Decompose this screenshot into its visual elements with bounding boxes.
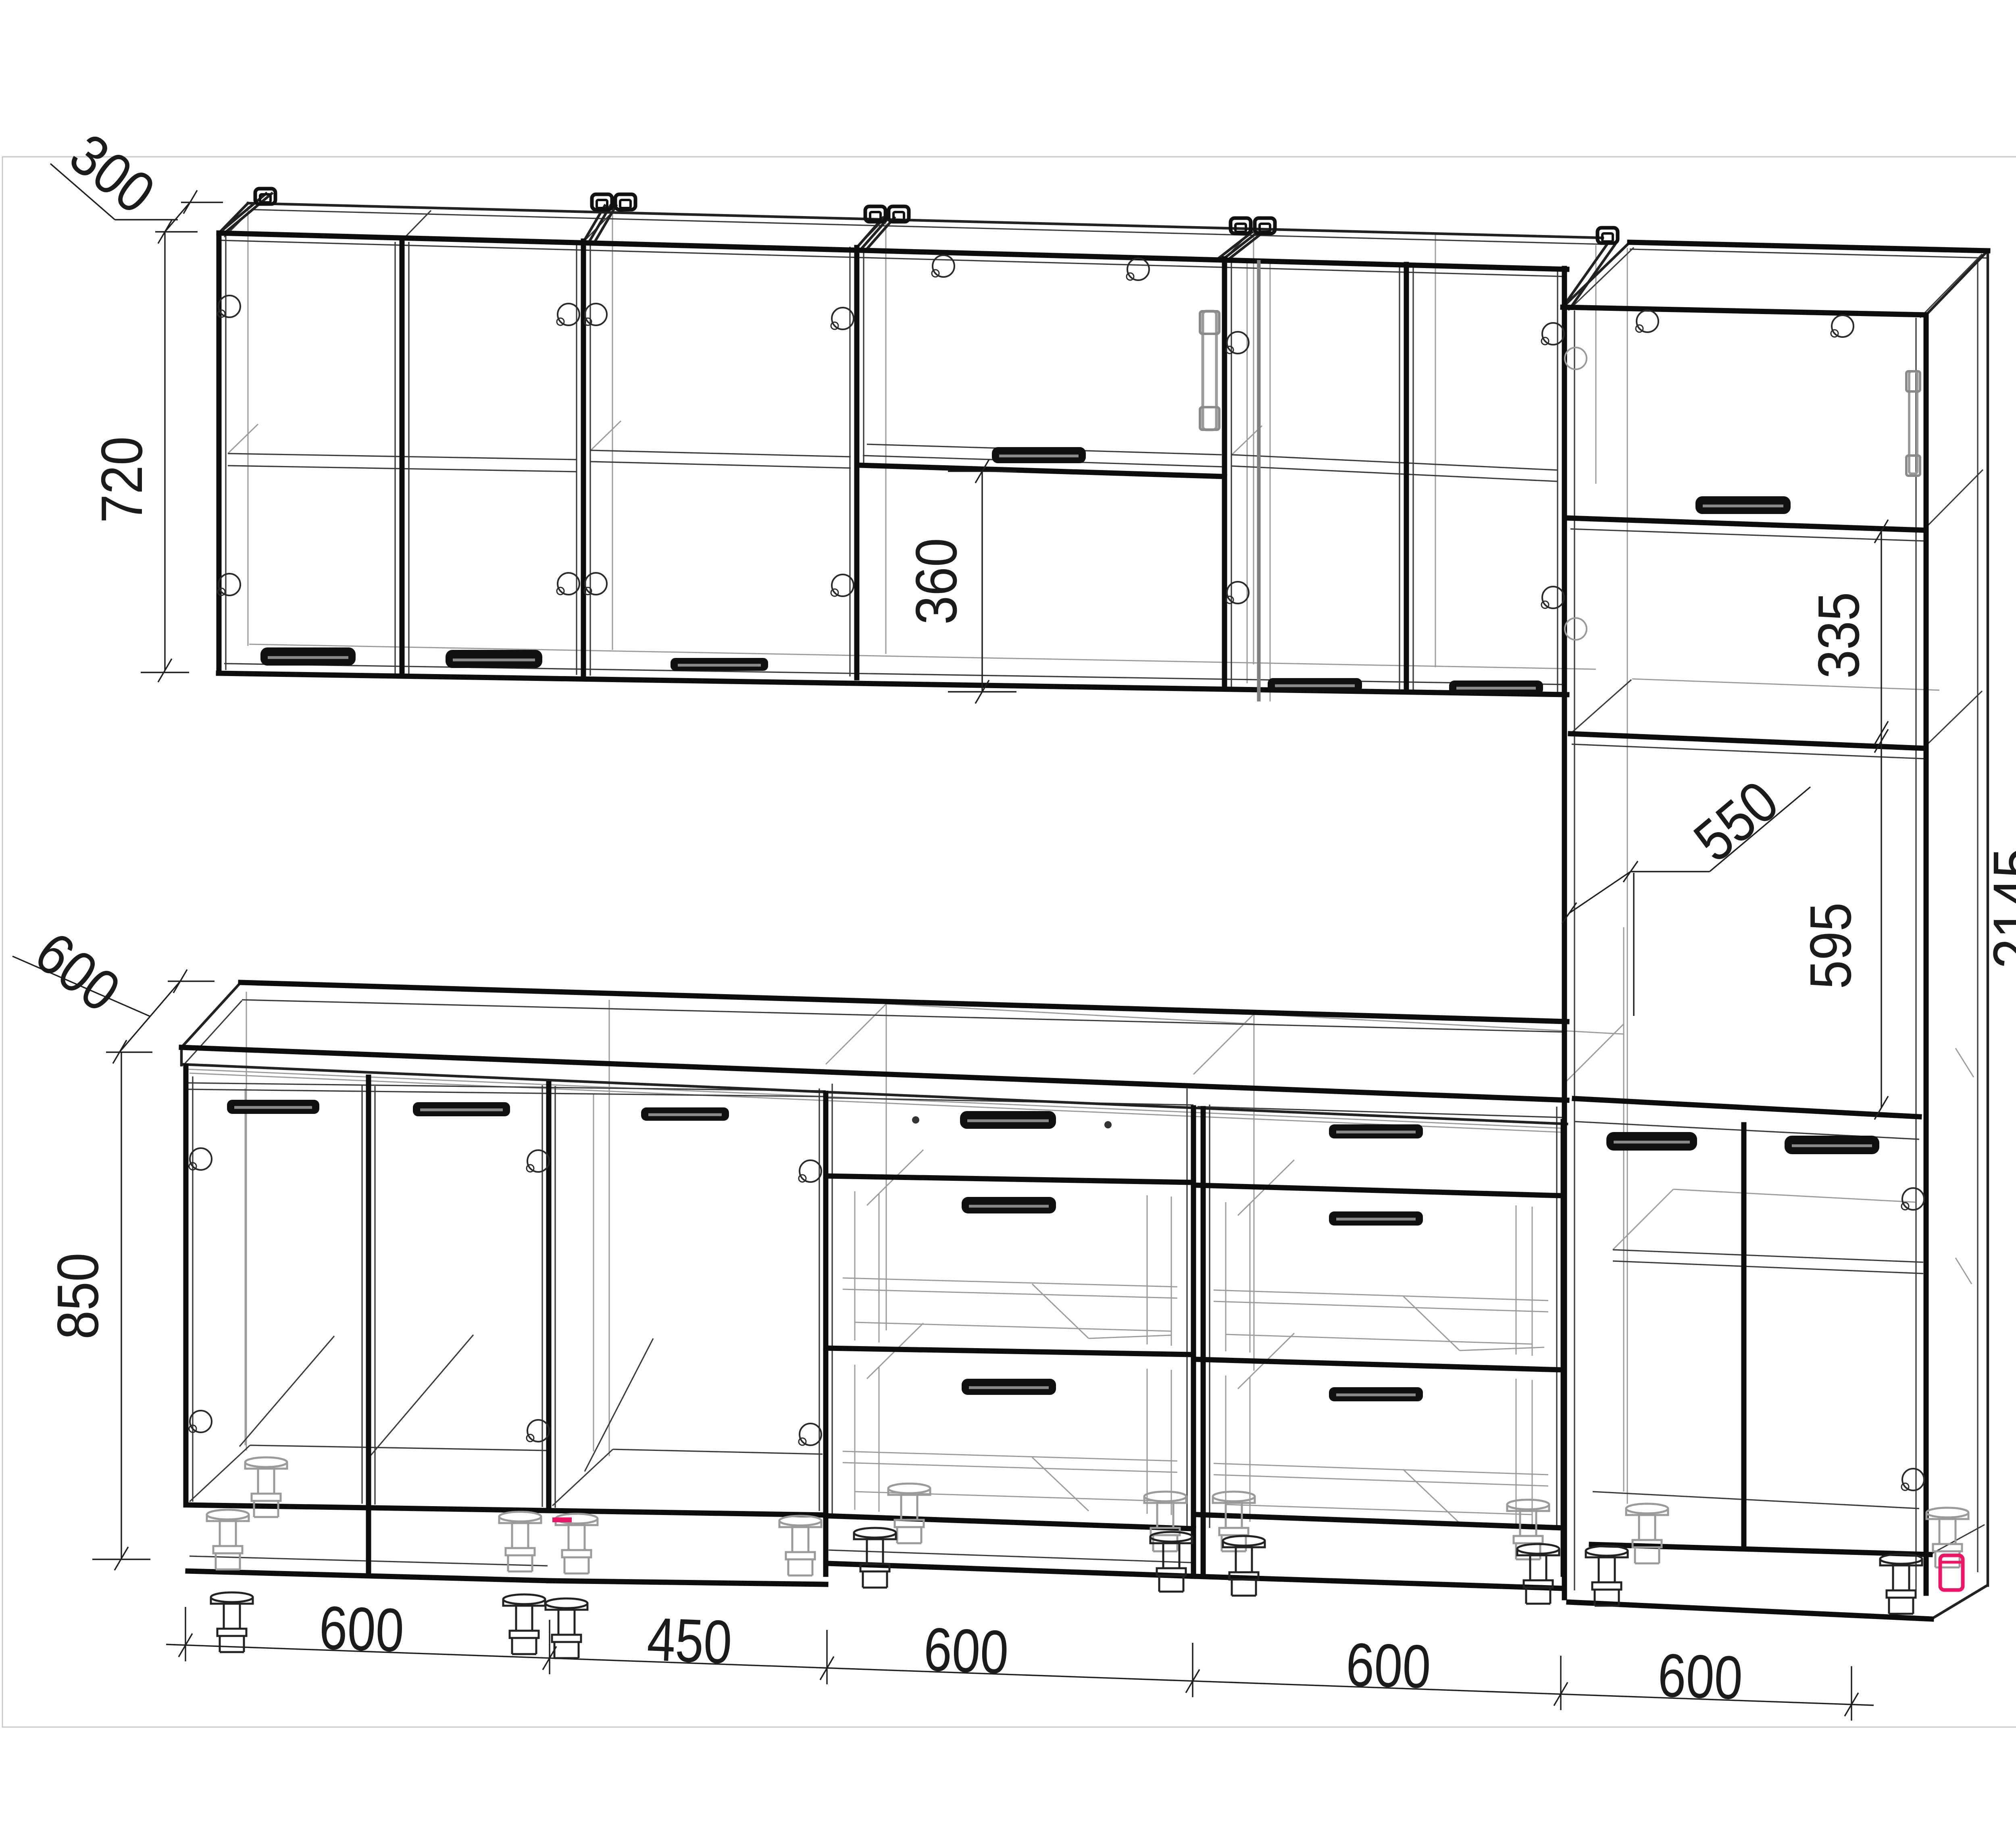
svg-text:850: 850: [45, 1253, 110, 1340]
svg-text:600: 600: [1345, 1630, 1432, 1701]
svg-text:600: 600: [923, 1615, 1010, 1687]
svg-text:450: 450: [646, 1605, 733, 1677]
svg-text:360: 360: [904, 538, 969, 625]
svg-text:335: 335: [1806, 592, 1871, 679]
svg-text:595: 595: [1798, 903, 1863, 989]
svg-text:600: 600: [1657, 1641, 1744, 1712]
svg-text:720: 720: [89, 437, 154, 523]
svg-text:2145: 2145: [1981, 848, 2016, 969]
svg-text:600: 600: [318, 1593, 405, 1665]
